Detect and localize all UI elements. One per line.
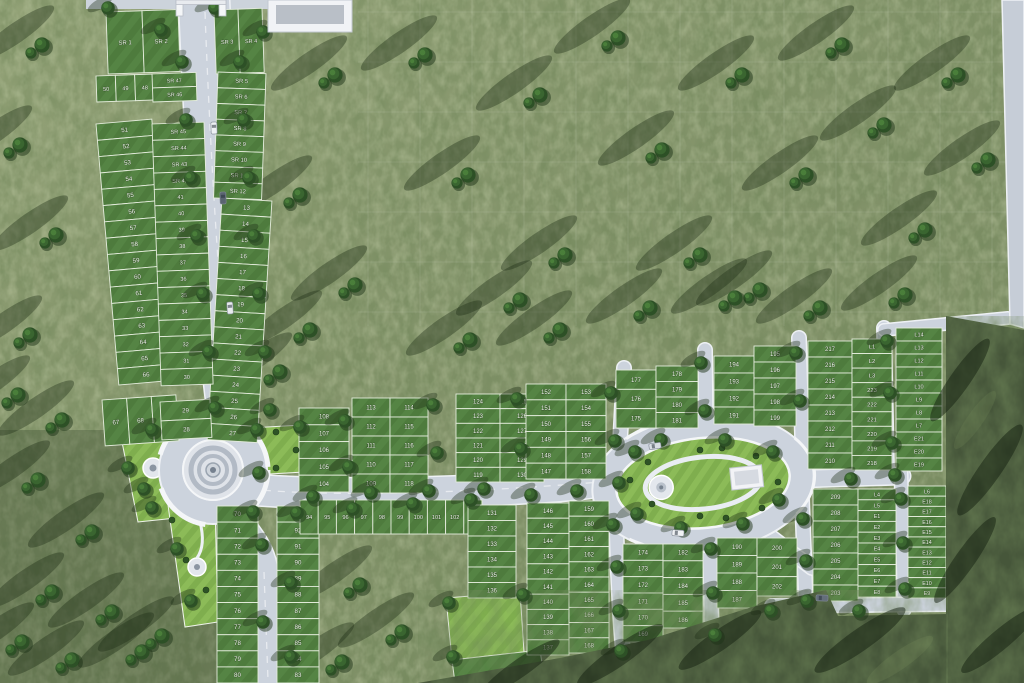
plot-label-L9: L9 — [916, 398, 922, 404]
plot-label-36: 36 — [180, 277, 186, 283]
plot-label-E15: E15 — [922, 530, 932, 536]
plot-label-SR45: SR 45 — [170, 129, 186, 136]
plot-label-E2: E2 — [874, 525, 881, 531]
plot-label-143: 143 — [543, 554, 554, 560]
plot-label-E17: E17 — [922, 510, 932, 516]
car — [672, 530, 684, 537]
plot-label-65: 65 — [141, 355, 149, 363]
plot-label-E10: E10 — [922, 581, 932, 587]
plot-label-149: 149 — [541, 438, 552, 444]
plot-label-165: 165 — [584, 598, 595, 604]
plot-label-L2: L2 — [869, 359, 875, 365]
plot-label-107: 107 — [319, 431, 330, 437]
plot-label-151: 151 — [541, 406, 552, 412]
plot-label-164: 164 — [584, 583, 595, 589]
plot-label-E16: E16 — [922, 520, 932, 526]
plot-label-E12: E12 — [922, 561, 932, 567]
plot-label-80: 80 — [234, 672, 241, 679]
plot-label-191: 191 — [729, 414, 740, 420]
plot-label-20: 20 — [236, 317, 244, 324]
plot-label-27: 27 — [229, 430, 237, 437]
oval-pavilion — [730, 465, 764, 490]
plot-label-L7: L7 — [916, 424, 922, 430]
plot-label-E8: E8 — [874, 590, 881, 596]
plot-label-139: 139 — [543, 615, 554, 621]
plot-label-176: 176 — [631, 397, 642, 403]
plot-label-170: 170 — [638, 616, 649, 622]
plot-label-145: 145 — [543, 524, 554, 530]
plot-label-206: 206 — [830, 543, 841, 549]
plot-label-49: 49 — [122, 86, 128, 92]
plot-label-193: 193 — [729, 380, 740, 386]
plot-group-p217-210: 217216215214213212211210 — [808, 341, 852, 469]
plot-label-41: 41 — [177, 195, 183, 201]
plot-label-192: 192 — [729, 397, 740, 403]
plot-label-159: 159 — [584, 507, 595, 513]
car — [816, 595, 828, 601]
plot-label-211: 211 — [825, 443, 835, 449]
plot-group-p177-175: 177176175 — [616, 370, 656, 428]
site-plan-svg: SR 1SR 2SR 3SR 4504948SR 47SR 46SR 5SR 6… — [0, 0, 1024, 683]
plot-label-183: 183 — [678, 567, 689, 573]
plot-label-156: 156 — [581, 438, 592, 444]
plot-label-SR12: SR 12 — [230, 189, 246, 196]
plot-label-158: 158 — [581, 469, 592, 475]
plot-label-67: 67 — [112, 419, 120, 427]
plot-label-79: 79 — [234, 656, 241, 663]
plot-label-58: 58 — [131, 241, 139, 249]
plot-label-117: 117 — [404, 463, 414, 469]
plot-label-24: 24 — [232, 382, 240, 389]
plot-label-184: 184 — [678, 584, 689, 590]
plot-group-p178-181: 178179180181 — [656, 366, 698, 428]
plot-label-E9: E9 — [924, 591, 931, 597]
plot-label-168: 168 — [584, 644, 595, 650]
car — [211, 122, 217, 134]
plot-label-221: 221 — [867, 417, 877, 423]
plot-group-p70-80: 7071727374757677787980 — [217, 506, 258, 683]
plot-group-p209-203: 209208207206205204203 — [813, 489, 858, 601]
plot-label-29: 29 — [182, 407, 190, 414]
plot-label-134: 134 — [487, 557, 498, 563]
plot-label-215: 215 — [825, 379, 836, 385]
roundabout-centerpiece — [210, 467, 216, 473]
plot-group-p146-137: 146145144143142141140139138137 — [527, 503, 569, 655]
plot-label-75: 75 — [234, 592, 241, 599]
plot-label-19: 19 — [237, 301, 245, 308]
plot-label-171: 171 — [638, 599, 649, 605]
plot-label-140: 140 — [543, 600, 554, 606]
plot-label-L5: L5 — [874, 503, 880, 509]
plot-label-178: 178 — [672, 372, 683, 378]
plot-label-SR44: SR 44 — [171, 146, 187, 153]
plot-label-48: 48 — [142, 85, 148, 91]
plot-label-146: 146 — [543, 509, 554, 515]
plot-label-150: 150 — [541, 422, 552, 428]
plot-label-180: 180 — [672, 403, 683, 409]
plot-label-154: 154 — [581, 406, 592, 412]
plot-label-SR6: SR 6 — [235, 94, 248, 100]
plot-label-SR46: SR 46 — [167, 92, 182, 99]
plot-label-197: 197 — [770, 384, 781, 390]
plot-group-p113-109: 113112111110109 — [352, 398, 390, 493]
plot-label-172: 172 — [638, 583, 649, 589]
plot-label-E19: E19 — [914, 463, 924, 469]
plot-label-56: 56 — [128, 208, 136, 216]
plot-label-147: 147 — [541, 469, 552, 475]
plot-label-87: 87 — [295, 608, 302, 615]
plot-label-200: 200 — [772, 546, 783, 552]
plot-label-106: 106 — [319, 448, 330, 454]
plot-label-188: 188 — [732, 580, 743, 586]
plot-group-p182-186: 182183184185186 — [663, 544, 703, 628]
plot-label-205: 205 — [830, 559, 841, 565]
plot-label-E13: E13 — [922, 550, 932, 556]
plot-label-E14: E14 — [922, 540, 932, 546]
plot-label-141: 141 — [543, 585, 554, 591]
plot-label-37: 37 — [180, 260, 186, 266]
plot-label-E3: E3 — [874, 536, 881, 542]
plot-label-77: 77 — [234, 624, 241, 631]
plot-label-76: 76 — [234, 608, 241, 615]
plot-label-E1: E1 — [874, 514, 881, 520]
plot-label-214: 214 — [825, 395, 836, 401]
plot-label-210: 210 — [825, 459, 836, 465]
plot-label-60: 60 — [134, 273, 142, 281]
plot-label-SR3: SR 3 — [221, 40, 234, 46]
car — [649, 442, 662, 450]
plot-label-73: 73 — [234, 560, 241, 567]
plot-group-L14-E19: L14L13L12L11L10L9L8L7E21E20E19 — [896, 328, 942, 471]
site-plan-canvas: SR 1SR 2SR 3SR 4504948SR 47SR 46SR 5SR 6… — [0, 0, 1024, 683]
plot-label-173: 173 — [638, 567, 649, 573]
plot-label-L6: L6 — [924, 489, 930, 495]
plot-label-177: 177 — [631, 378, 642, 384]
plot-label-17: 17 — [239, 269, 247, 276]
plot-label-121: 121 — [473, 444, 484, 450]
plot-label-133: 133 — [487, 542, 498, 548]
plot-label-153: 153 — [581, 390, 592, 396]
plot-group-L6-E9: L6E18E17E16E15E14E13E12E11E10E9 — [908, 486, 946, 598]
plot-label-L4: L4 — [874, 493, 880, 499]
plot-label-L13: L13 — [914, 346, 923, 352]
plot-label-38: 38 — [179, 244, 185, 250]
car — [227, 302, 234, 314]
plot-label-179: 179 — [672, 387, 683, 393]
plot-group-p152-147: 152151150149148147 — [526, 384, 566, 479]
plot-label-85: 85 — [295, 640, 302, 647]
plot-group-L1-218: L1L2L3223222221220219218 — [852, 339, 892, 470]
plot-label-L1: L1 — [869, 344, 875, 350]
plot-label-98: 98 — [379, 515, 385, 521]
plot-label-138: 138 — [543, 630, 554, 636]
plot-label-162: 162 — [584, 552, 595, 558]
plot-group-p190-187: 190189188187 — [717, 538, 757, 608]
plot-label-112: 112 — [366, 425, 376, 431]
plot-label-32: 32 — [183, 342, 189, 348]
plot-label-142: 142 — [543, 570, 554, 576]
plot-group-p200-202: 200201202 — [757, 538, 797, 596]
plot-label-L14: L14 — [914, 333, 923, 339]
plot-label-54: 54 — [125, 176, 133, 184]
plot-label-59: 59 — [132, 257, 140, 265]
plot-label-21: 21 — [235, 333, 243, 340]
plot-label-204: 204 — [830, 575, 841, 581]
plot-label-E7: E7 — [874, 579, 881, 585]
plot-label-SR9: SR 9 — [233, 142, 246, 148]
plot-label-SR5: SR 5 — [235, 79, 248, 85]
plot-label-101: 101 — [432, 515, 441, 521]
plot-label-181: 181 — [672, 418, 683, 424]
plot-label-161: 161 — [584, 537, 595, 543]
plot-group-p194-191: 194193192191 — [714, 356, 754, 424]
plot-label-131: 131 — [487, 511, 498, 517]
plot-label-100: 100 — [414, 515, 423, 521]
plot-label-94: 94 — [306, 515, 312, 521]
plot-label-222: 222 — [867, 403, 877, 409]
plot-label-51: 51 — [121, 127, 129, 135]
plot-label-105: 105 — [319, 465, 330, 471]
plot-label-190: 190 — [732, 545, 743, 551]
plot-label-216: 216 — [825, 363, 836, 369]
plot-label-116: 116 — [404, 444, 414, 450]
plot-label-26: 26 — [230, 414, 238, 421]
plot-label-61: 61 — [135, 290, 143, 298]
plot-label-167: 167 — [584, 628, 595, 634]
plot-group-p124-119: 124123122121120119 — [456, 394, 500, 482]
plot-label-E18: E18 — [922, 499, 932, 505]
plot-label-16: 16 — [240, 253, 248, 260]
plot-label-115: 115 — [404, 425, 414, 431]
plot-label-122: 122 — [473, 429, 484, 435]
plot-label-220: 220 — [867, 432, 877, 438]
plot-label-99: 99 — [397, 515, 403, 521]
plot-label-64: 64 — [139, 339, 147, 347]
plot-label-209: 209 — [830, 495, 841, 501]
plot-label-72: 72 — [234, 543, 241, 550]
plot-group-p114-118: 114115116117118 — [390, 398, 428, 493]
plot-label-207: 207 — [830, 527, 841, 533]
plot-label-174: 174 — [638, 550, 649, 556]
plot-label-189: 189 — [732, 562, 743, 568]
plot-label-217: 217 — [825, 347, 836, 353]
plot-label-E20: E20 — [914, 450, 924, 456]
plot-label-90: 90 — [295, 560, 302, 567]
plot-label-202: 202 — [772, 585, 783, 591]
plot-label-166: 166 — [584, 613, 595, 619]
plot-label-155: 155 — [581, 422, 592, 428]
plot-label-22: 22 — [234, 350, 242, 357]
plot-label-136: 136 — [487, 588, 498, 594]
plot-label-194: 194 — [729, 363, 740, 369]
gate-arch — [176, 0, 226, 5]
plot-label-163: 163 — [584, 568, 595, 574]
plot-label-102: 102 — [450, 515, 459, 521]
plot-label-124: 124 — [473, 400, 484, 406]
plot-group-p94-103: 949596979899100101102103 — [300, 500, 482, 534]
plot-label-185: 185 — [678, 601, 689, 607]
plot-label-198: 198 — [770, 400, 781, 406]
plot-label-175: 175 — [631, 417, 642, 423]
plot-label-88: 88 — [295, 592, 302, 599]
plot-label-91: 91 — [295, 543, 302, 550]
plot-label-157: 157 — [581, 453, 592, 459]
plot-label-SR10: SR 10 — [231, 157, 247, 164]
plot-label-113: 113 — [366, 406, 376, 412]
plot-group-sr47-46: SR 47SR 46 — [152, 72, 197, 102]
plot-label-208: 208 — [830, 511, 841, 517]
plot-label-SR4: SR 4 — [245, 39, 258, 45]
plot-label-135: 135 — [487, 573, 498, 579]
plot-label-50: 50 — [103, 87, 109, 93]
plot-label-E5: E5 — [874, 557, 881, 563]
car — [220, 192, 226, 204]
plot-label-63: 63 — [138, 322, 146, 330]
plot-label-212: 212 — [825, 427, 836, 433]
plot-group-p153-158: 153154155156157158 — [566, 384, 606, 479]
plot-label-196: 196 — [770, 368, 781, 374]
plot-label-148: 148 — [541, 453, 552, 459]
plot-label-74: 74 — [234, 576, 241, 583]
plot-label-83: 83 — [295, 672, 302, 679]
plot-label-96: 96 — [342, 515, 348, 521]
plot-label-L3: L3 — [869, 374, 875, 380]
plot-label-62: 62 — [137, 306, 145, 314]
plot-label-95: 95 — [324, 515, 330, 521]
plot-label-55: 55 — [127, 192, 135, 200]
plot-label-L12: L12 — [914, 359, 923, 365]
plot-label-L10: L10 — [914, 385, 923, 391]
plot-label-132: 132 — [487, 526, 498, 532]
plot-group-p131-136: 131132133134135136 — [468, 505, 516, 598]
plot-label-218: 218 — [867, 461, 877, 467]
plot-label-31: 31 — [183, 358, 189, 364]
plot-label-13: 13 — [243, 205, 251, 212]
plot-label-199: 199 — [770, 416, 781, 422]
plot-label-28: 28 — [183, 426, 191, 433]
plot-label-110: 110 — [366, 463, 376, 469]
plot-label-104: 104 — [319, 482, 330, 488]
plot-label-SR47: SR 47 — [167, 78, 182, 85]
plot-label-71: 71 — [234, 527, 241, 534]
plot-label-52: 52 — [122, 143, 130, 151]
plot-label-L8: L8 — [916, 411, 922, 417]
plot-label-34: 34 — [181, 309, 187, 315]
plot-label-187: 187 — [732, 597, 743, 603]
plot-label-186: 186 — [678, 618, 689, 624]
plot-label-40: 40 — [178, 211, 184, 217]
plot-label-SR1: SR 1 — [118, 40, 132, 46]
plot-label-213: 213 — [825, 411, 836, 417]
plot-group-p195-199: 195196197198199 — [754, 346, 796, 426]
plot-label-L11: L11 — [915, 372, 924, 378]
plot-label-E11: E11 — [922, 571, 931, 577]
plot-label-25: 25 — [231, 398, 239, 405]
plot-group-r50-48: 504948 — [96, 74, 155, 102]
plot-label-219: 219 — [867, 446, 877, 452]
plot-label-SR2: SR 2 — [154, 39, 168, 45]
plot-label-66: 66 — [142, 371, 150, 379]
plot-label-86: 86 — [295, 624, 302, 631]
plot-label-30: 30 — [184, 375, 190, 381]
plot-label-78: 78 — [234, 640, 241, 647]
plot-label-144: 144 — [543, 539, 554, 545]
plot-label-23: 23 — [233, 366, 241, 373]
plot-label-E21: E21 — [914, 437, 924, 443]
plot-label-97: 97 — [361, 515, 367, 521]
plot-label-57: 57 — [129, 224, 137, 232]
plot-label-E4: E4 — [874, 547, 881, 553]
plot-label-E6: E6 — [874, 568, 881, 574]
plot-label-203: 203 — [830, 591, 841, 597]
plot-label-182: 182 — [678, 551, 689, 557]
plot-label-201: 201 — [772, 565, 783, 571]
plot-label-120: 120 — [473, 458, 484, 464]
plot-label-152: 152 — [541, 390, 552, 396]
plot-label-111: 111 — [366, 444, 376, 450]
plot-label-123: 123 — [473, 414, 484, 420]
plot-label-33: 33 — [182, 326, 188, 332]
plot-label-53: 53 — [124, 159, 132, 167]
